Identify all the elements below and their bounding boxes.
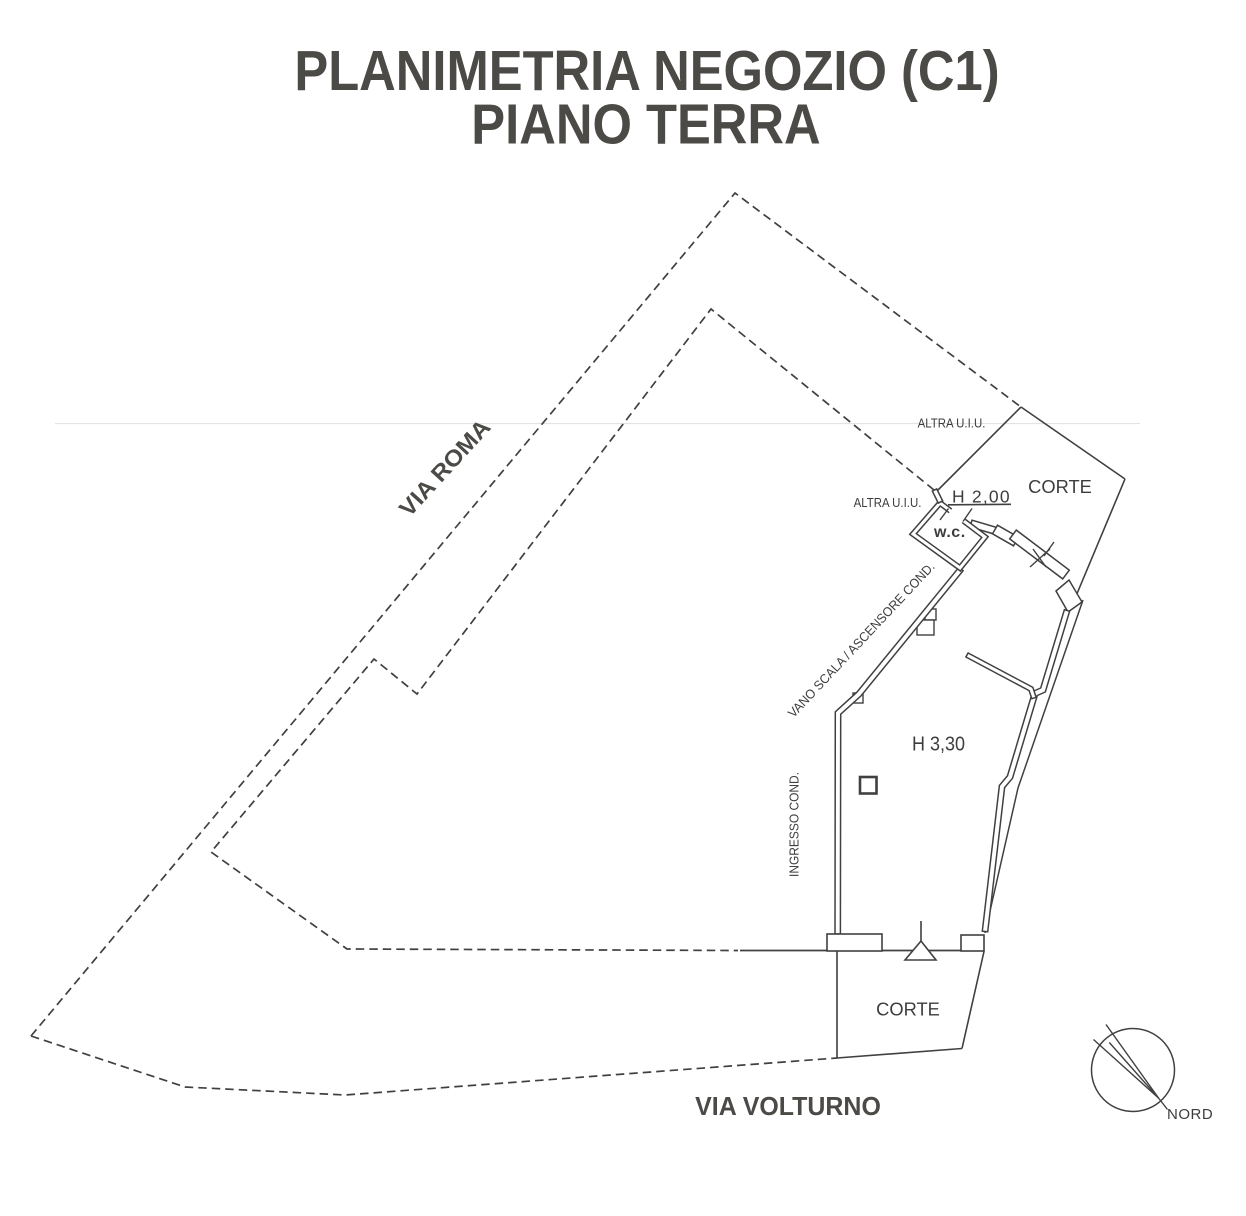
svg-text:CORTE: CORTE xyxy=(876,999,940,1020)
svg-text:H 2,00: H 2,00 xyxy=(952,487,1011,507)
svg-text:w.c.: w.c. xyxy=(933,524,966,541)
svg-text:VIA VOLTURNO: VIA VOLTURNO xyxy=(695,1093,881,1122)
svg-text:ALTRA U.I.U.: ALTRA U.I.U. xyxy=(854,495,922,510)
svg-text:ALTRA U.I.U.: ALTRA U.I.U. xyxy=(918,416,986,431)
svg-text:CORTE: CORTE xyxy=(1028,476,1092,497)
svg-text:INGRESSO COND.: INGRESSO COND. xyxy=(787,772,802,877)
svg-text:NORD: NORD xyxy=(1167,1106,1213,1123)
svg-text:H 3,30: H 3,30 xyxy=(912,734,965,756)
svg-text:PIANO TERRA: PIANO TERRA xyxy=(471,93,820,156)
